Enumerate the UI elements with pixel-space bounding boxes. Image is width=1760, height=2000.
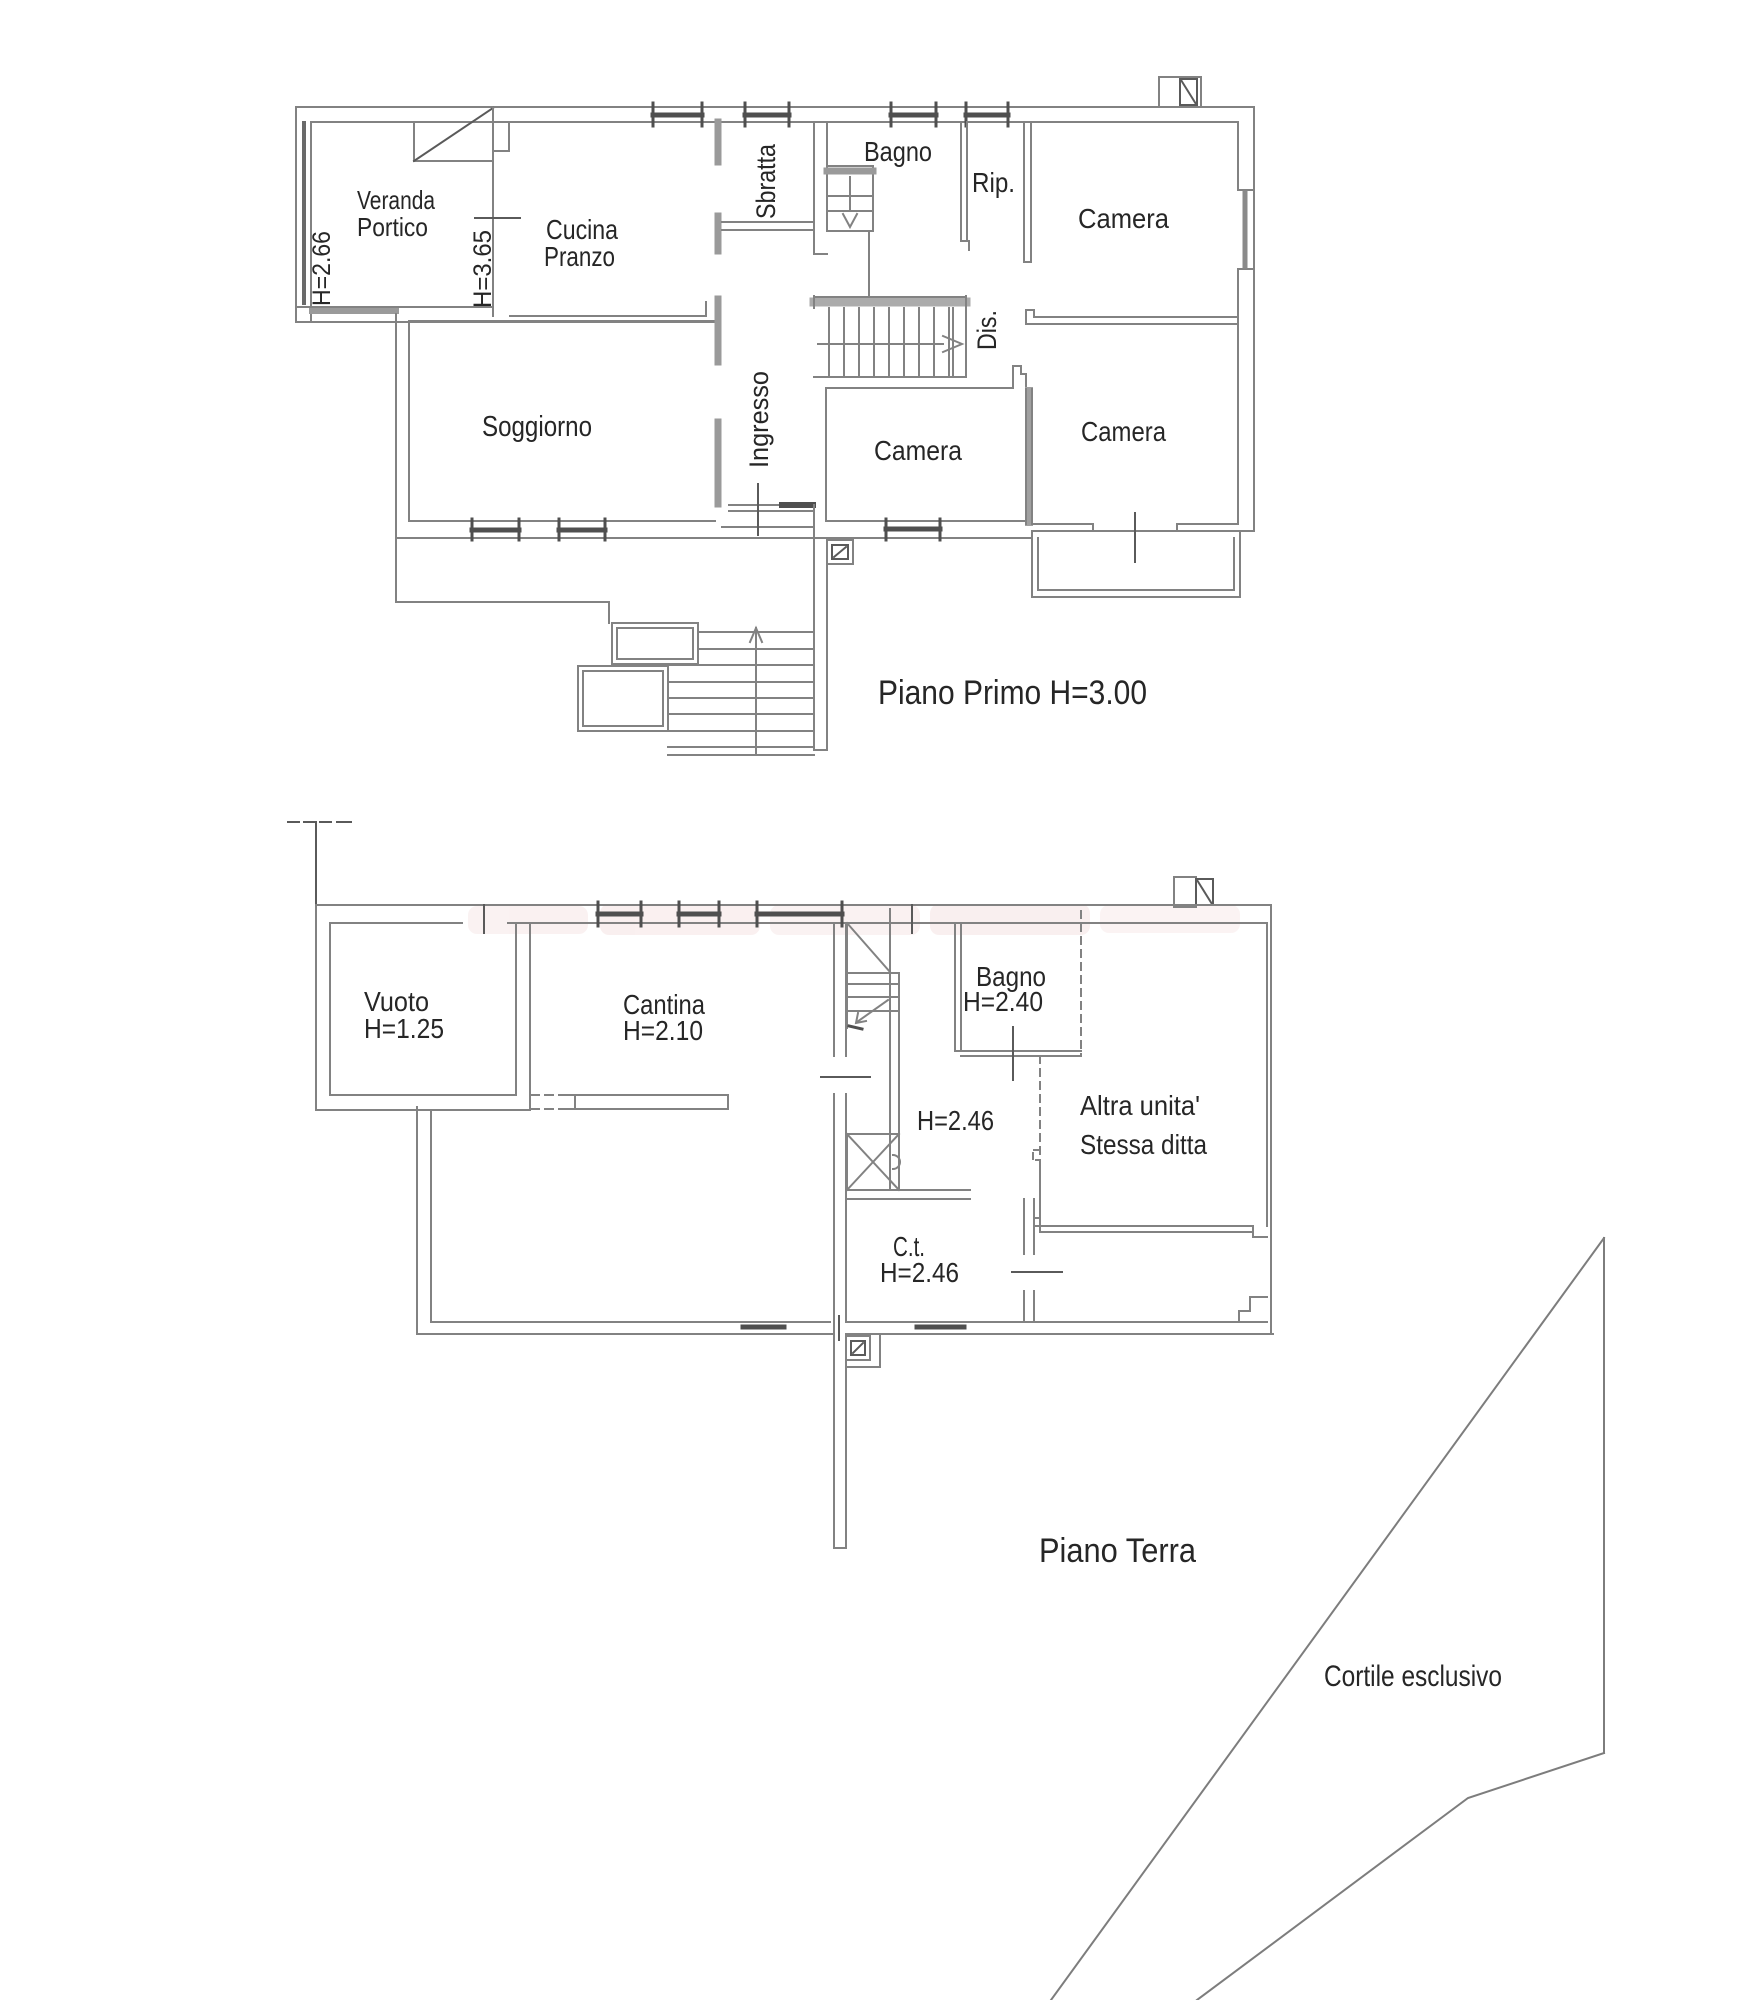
svg-text:Dis.: Dis.	[972, 310, 1002, 350]
svg-text:Altra unita': Altra unita'	[1080, 1090, 1200, 1121]
svg-text:Camera: Camera	[1081, 416, 1166, 447]
svg-text:Sbratta: Sbratta	[751, 143, 781, 219]
svg-text:Pranzo: Pranzo	[544, 241, 615, 272]
svg-text:H=3.65: H=3.65	[469, 230, 497, 308]
svg-text:Portico: Portico	[357, 212, 428, 242]
svg-text:H=2.66: H=2.66	[308, 231, 336, 306]
svg-text:Stessa ditta: Stessa ditta	[1080, 1129, 1207, 1160]
svg-text:H=2.40: H=2.40	[963, 986, 1043, 1017]
svg-text:Ingresso: Ingresso	[744, 371, 774, 468]
svg-text:Cortile esclusivo: Cortile esclusivo	[1324, 1660, 1502, 1693]
svg-text:Rip.: Rip.	[972, 167, 1015, 198]
svg-text:H=2.46: H=2.46	[917, 1105, 994, 1136]
svg-text:Veranda: Veranda	[357, 185, 435, 215]
svg-text:Camera: Camera	[1078, 203, 1169, 234]
svg-text:Camera: Camera	[874, 435, 962, 466]
svg-text:H=2.46: H=2.46	[880, 1257, 959, 1288]
svg-text:H=1.25: H=1.25	[364, 1013, 444, 1044]
svg-text:Bagno: Bagno	[864, 136, 932, 167]
svg-text:Piano Terra: Piano Terra	[1039, 1532, 1196, 1570]
svg-text:Piano Primo H=3.00: Piano Primo H=3.00	[878, 674, 1147, 712]
svg-text:H=2.10: H=2.10	[623, 1015, 703, 1046]
svg-text:Soggiorno: Soggiorno	[482, 411, 592, 443]
